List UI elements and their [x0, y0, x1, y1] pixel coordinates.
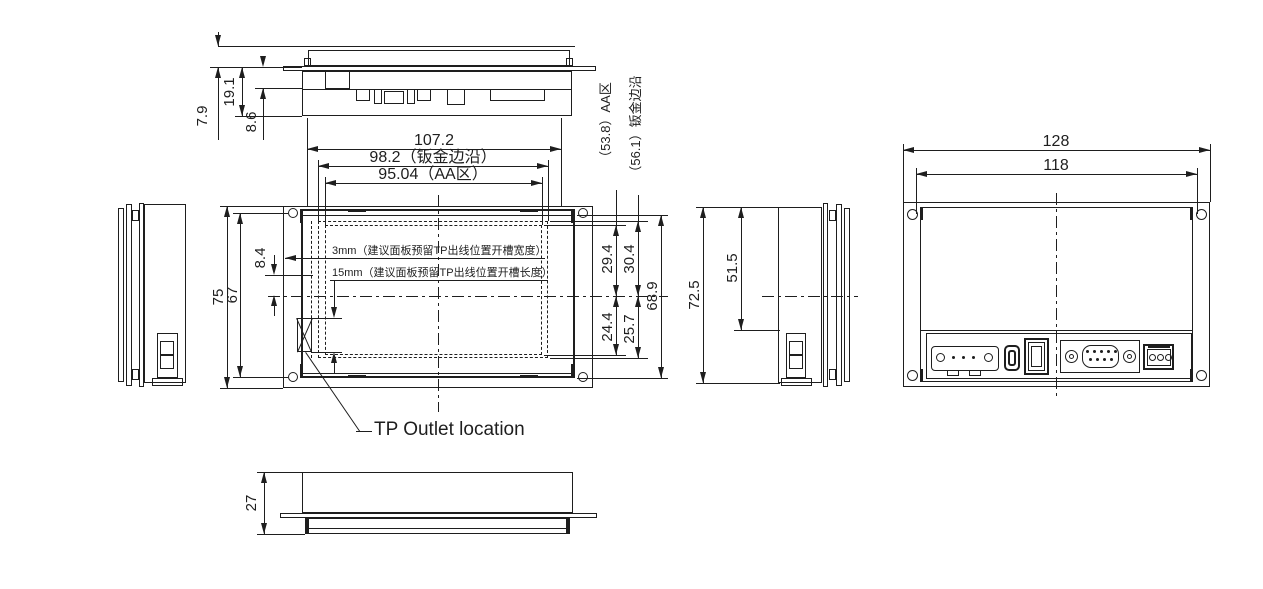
clip-mark [566, 518, 569, 534]
dim-label: 27 [244, 495, 261, 512]
dim-arrow [261, 472, 267, 483]
bezel-layer-line [305, 528, 570, 529]
engineering-drawing: 7.9 19.1 8.6 [0, 0, 1263, 589]
body-profile [302, 472, 573, 513]
bottom-view: 27 [0, 0, 1263, 589]
clip-mark [306, 518, 309, 534]
bezel-profile [305, 518, 570, 534]
ext-line [257, 534, 305, 535]
dim-arrow [261, 523, 267, 534]
